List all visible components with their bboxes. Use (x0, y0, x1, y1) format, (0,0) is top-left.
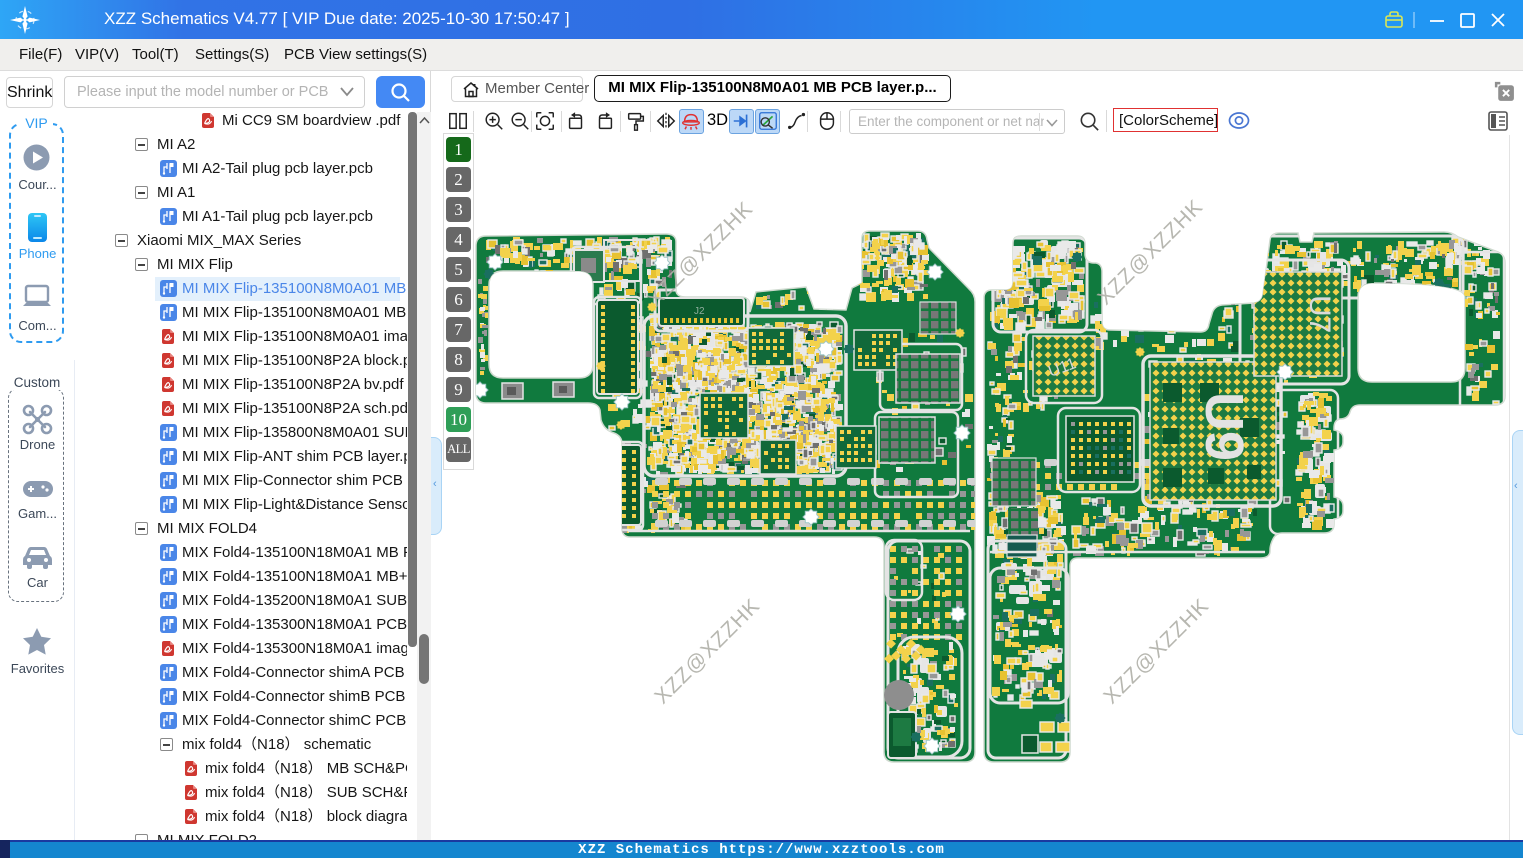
svg-text:XZZ@XZZHK: XZZ@XZZHK (1093, 195, 1207, 309)
svg-text:XZZ@XZZHK: XZZ@XZZHK (1099, 594, 1213, 708)
svg-text:U7: U7 (1303, 295, 1336, 333)
svg-text:J2: J2 (694, 306, 705, 317)
svg-text:U9: U9 (1194, 392, 1254, 461)
svg-text:XZZ@XZZHK: XZZ@XZZHK (650, 594, 764, 708)
